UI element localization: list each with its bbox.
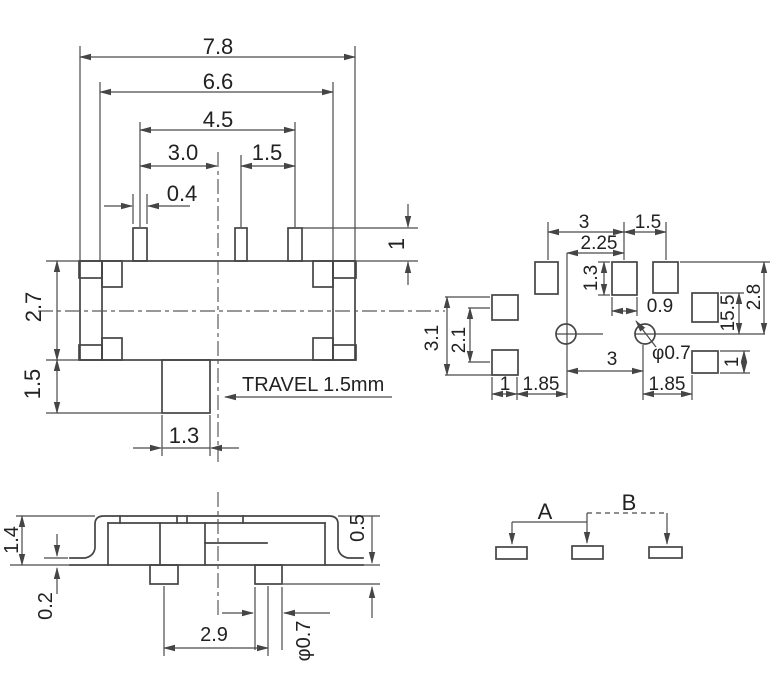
dim-front-pin-height: 1 [384, 238, 409, 250]
dim-fp-right-pad-top: 15.5 [718, 295, 739, 332]
schematic-pad-2 [572, 546, 603, 559]
dim-fp-pad-pitch: 3 [579, 212, 590, 233]
dim-front-pin-span: 4.5 [203, 107, 234, 132]
dim-fp-left-span: 3.1 [422, 325, 443, 351]
dim-fp-via-to-pad: 2.25 [581, 233, 618, 254]
dim-fp-pad-width: 0.9 [647, 296, 673, 317]
schematic-pad-1 [496, 547, 527, 559]
dim-front-frame-width: 6.6 [203, 69, 234, 94]
dim-fp-via-pitch: 3 [607, 349, 618, 370]
side-view-dimensions: 1.4 0.2 0.5 2.9 φ0.7 [1, 514, 380, 661]
schematic-pad-3 [649, 547, 682, 558]
dim-side-standoff: 0.2 [35, 592, 57, 620]
dim-side-peg-height: 0.5 [347, 514, 369, 542]
side-view: 1.4 0.2 0.5 2.9 φ0.7 [1, 492, 380, 661]
via-diameter-label: φ0.7 [652, 343, 691, 364]
dim-front-pitch-right: 1.5 [252, 140, 283, 165]
schematic-view: A B [496, 490, 682, 559]
dim-fp-pad-pitch-right: 1.5 [635, 212, 661, 233]
dim-side-height: 1.4 [1, 526, 23, 554]
front-view-dimensions: 7.8 6.6 4.5 3.0 1.5 0.4 1 2.7 1.5 1.3 TR… [20, 34, 418, 456]
dim-fp-pad-height: 1.3 [581, 265, 602, 291]
dim-fp-bottom-pad-width: 1 [500, 374, 511, 395]
drawing-sheet: 7.8 6.6 4.5 3.0 1.5 0.4 1 2.7 1.5 1.3 TR… [0, 0, 776, 691]
dim-fp-bottom-left: 1.85 [523, 374, 560, 395]
dim-fp-bottom-right: 1.85 [649, 374, 686, 395]
front-view: 7.8 6.6 4.5 3.0 1.5 0.4 1 2.7 1.5 1.3 TR… [20, 34, 445, 462]
dim-front-pin-width: 0.4 [167, 181, 198, 206]
dim-front-knob-width: 1.3 [169, 423, 200, 448]
side-view-geometry [70, 492, 363, 618]
footprint-view: 3 1.5 2.25 1.3 0.9 φ0.7 3.1 2.1 3 1 1.85… [422, 212, 770, 400]
dim-front-pitch-left: 3.0 [168, 140, 199, 165]
travel-note: TRAVEL 1.5mm [242, 374, 384, 396]
dim-side-peg-pitch: 2.9 [200, 624, 228, 646]
schematic-label-a: A [538, 499, 553, 524]
dim-fp-right-pad-height: 1 [722, 357, 743, 368]
technical-drawing: 7.8 6.6 4.5 3.0 1.5 0.4 1 2.7 1.5 1.3 TR… [0, 0, 776, 691]
schematic-label-b: B [622, 490, 637, 515]
dim-front-knob-height: 1.5 [20, 369, 45, 400]
dim-front-total-width: 7.8 [203, 34, 234, 59]
dim-front-body-height: 2.7 [21, 292, 46, 323]
dim-fp-right-span: 2.8 [744, 284, 765, 310]
dim-fp-left-pitch: 2.1 [449, 327, 470, 353]
dim-side-peg-diameter: φ0.7 [293, 621, 315, 662]
